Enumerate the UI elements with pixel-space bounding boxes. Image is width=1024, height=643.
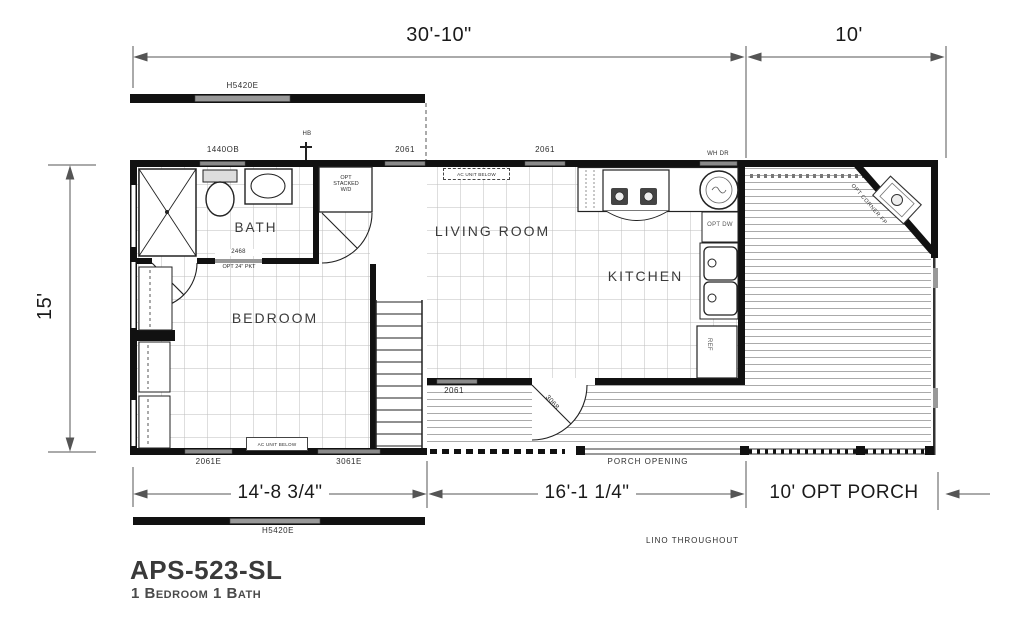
dim-top-porch: 10' — [756, 24, 942, 46]
window-label-h5420e-top: H5420E — [195, 82, 290, 91]
refrigerator — [697, 326, 737, 378]
room-label-bedroom: BEDROOM — [200, 311, 350, 326]
plan-model-title: APS-523-SL — [130, 556, 282, 585]
hose-bib-symbol — [300, 142, 312, 160]
hitch-end-wall — [130, 94, 426, 160]
window-label-2061-c: 2061 — [432, 387, 476, 396]
water-heater — [700, 171, 738, 209]
dim-bottom-left: 14'-8 3/4" — [231, 482, 328, 503]
range — [603, 170, 669, 221]
ref-label: REF — [705, 338, 712, 351]
room-label-living: LIVING ROOM — [420, 224, 565, 239]
hitch-bar-bottom — [133, 517, 425, 525]
porch-opening-label: PORCH OPENING — [583, 458, 713, 467]
ac-unit-box-living: AC UNIT BELOW — [443, 168, 510, 180]
opt-dw-label: OPT DW — [702, 222, 738, 229]
bedroom-closets — [139, 267, 172, 448]
wh-door-label: WH DR — [697, 151, 739, 158]
pocket-door-opt-label: OPT 24" PKT — [208, 264, 270, 270]
window-label-2061-b: 2061 — [525, 146, 565, 155]
room-label-bath: BATH — [206, 221, 306, 236]
pocket-door-size-label: 2468 — [215, 249, 262, 256]
dim-left: 15' — [34, 292, 56, 320]
staircase — [376, 300, 422, 448]
dim-bottom-porch: 10' OPT PORCH — [750, 483, 938, 504]
ac-unit-box-bedroom: AC UNIT BELOW — [246, 437, 308, 451]
lino-note: LINO THROUGHOUT — [630, 537, 755, 546]
dim-bottom-mid: 16'-1 1/4" — [538, 482, 635, 503]
stacked-wd-label: OPT STACKED W/D — [322, 175, 370, 193]
window-label-2061e: 2061E — [185, 458, 232, 467]
window-label-2061-a: 2061 — [385, 146, 425, 155]
floor-plan-drawing — [0, 0, 1024, 643]
room-label-kitchen: KITCHEN — [598, 269, 693, 284]
toilet — [203, 170, 237, 216]
floor-plan-sheet: 30'-10" 10' 15' 14'-8 3/4" 16'-1 1/4" 10… — [0, 0, 1024, 643]
shower — [139, 169, 196, 256]
hose-bib-label: HB — [297, 131, 317, 138]
dim-top-main: 30'-10" — [134, 24, 744, 46]
kitchen-sink — [700, 243, 738, 319]
window-label-h5420e-bottom: H5420E — [233, 527, 323, 536]
plan-subtitle: 1 Bedroom 1 Bath — [131, 586, 261, 603]
window-label-3061e: 3061E — [318, 458, 380, 467]
window-label-1440ob: 1440OB — [198, 146, 248, 155]
bath-sink — [245, 169, 292, 204]
